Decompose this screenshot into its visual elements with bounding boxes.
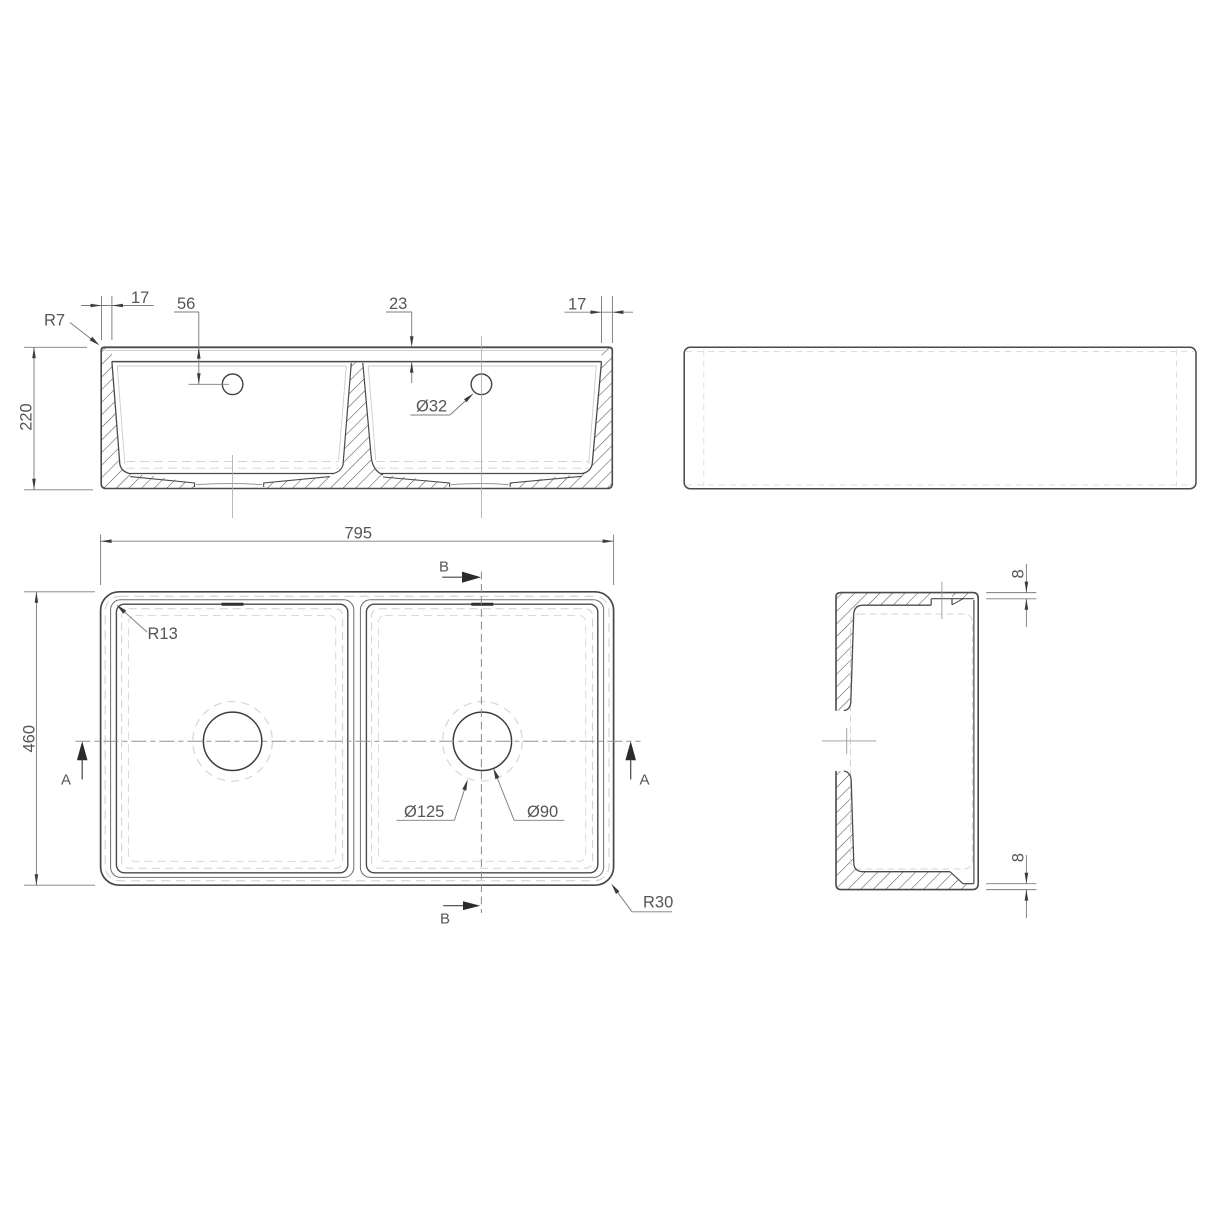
svg-text:R7: R7 (44, 312, 65, 330)
svg-text:17: 17 (568, 296, 586, 314)
svg-text:Ø90: Ø90 (527, 803, 558, 821)
svg-text:B: B (439, 559, 449, 576)
svg-text:A: A (61, 772, 71, 789)
svg-text:R13: R13 (148, 625, 178, 643)
svg-text:220: 220 (18, 403, 36, 431)
svg-text:Ø125: Ø125 (404, 803, 444, 821)
svg-text:Ø32: Ø32 (416, 398, 447, 416)
svg-text:8: 8 (1009, 569, 1027, 578)
svg-text:23: 23 (389, 295, 407, 313)
svg-text:B: B (440, 911, 450, 928)
svg-text:795: 795 (345, 525, 373, 543)
svg-text:8: 8 (1009, 853, 1027, 862)
svg-text:R30: R30 (643, 894, 673, 912)
svg-text:460: 460 (21, 725, 39, 753)
svg-text:A: A (640, 772, 650, 789)
svg-text:17: 17 (131, 289, 149, 307)
svg-text:56: 56 (177, 295, 195, 313)
